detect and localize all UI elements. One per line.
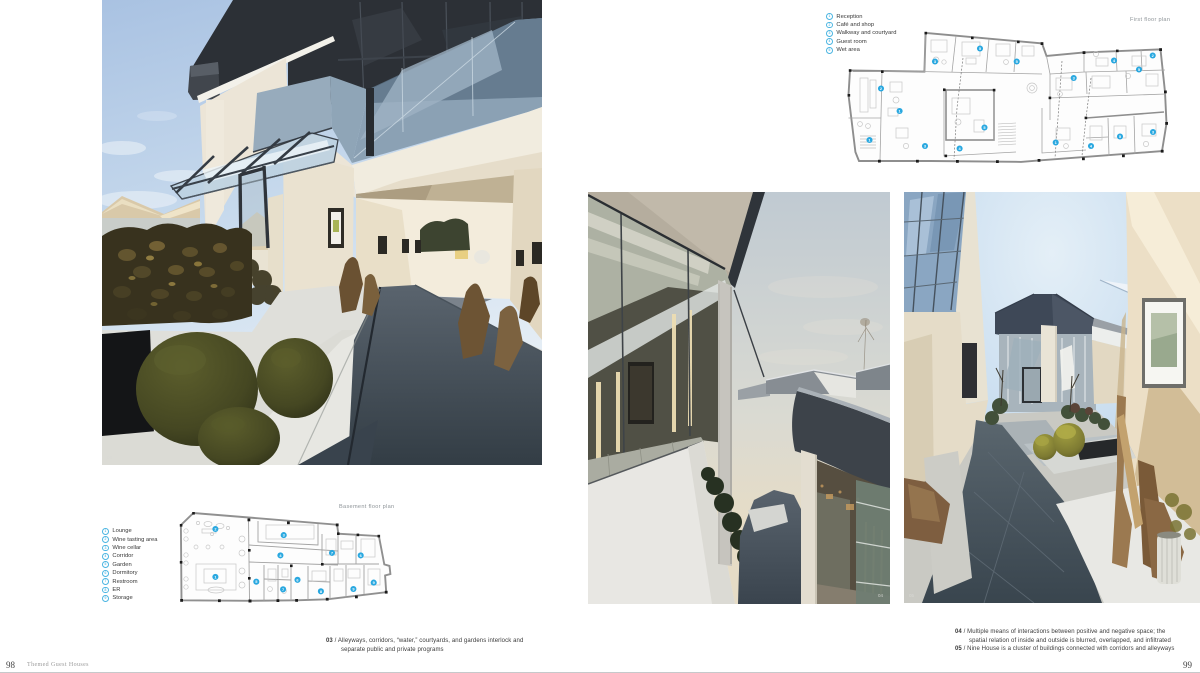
svg-text:03: 03 xyxy=(107,455,113,460)
svg-text:05: 05 xyxy=(909,593,915,598)
svg-text:7: 7 xyxy=(282,587,284,592)
svg-text:7: 7 xyxy=(331,550,333,555)
svg-text:04: 04 xyxy=(878,593,884,598)
